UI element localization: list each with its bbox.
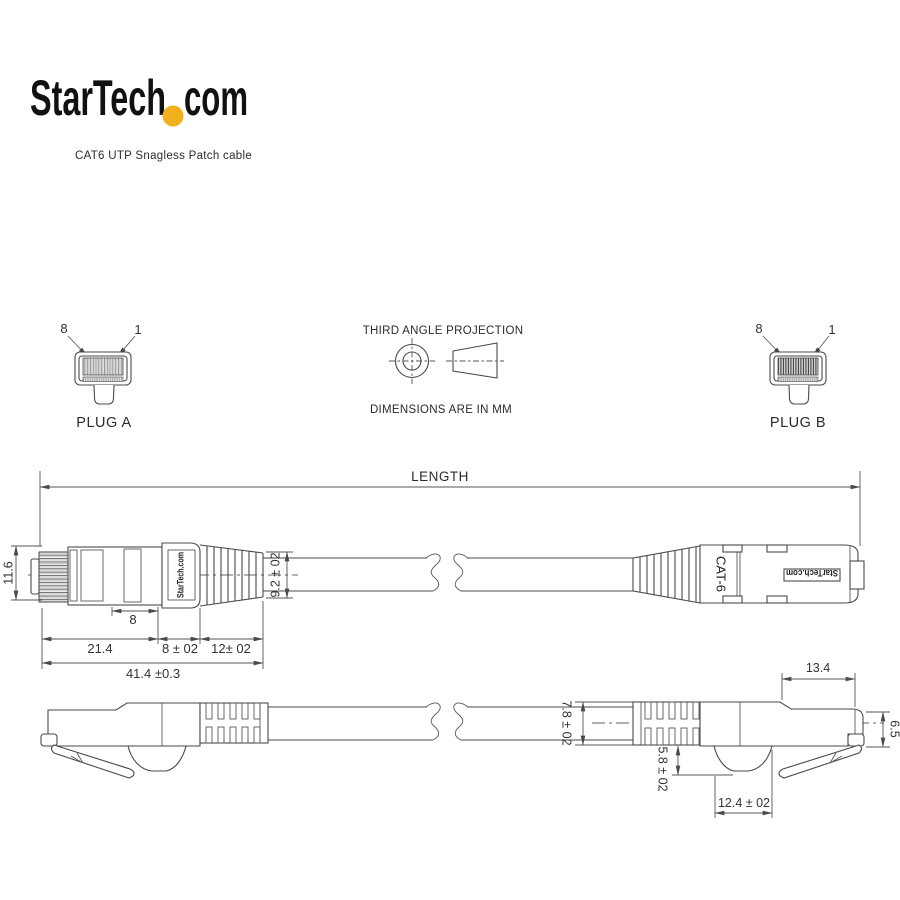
bottom-left-strain-relief [200, 703, 268, 743]
plug-b-strain-tab [789, 385, 809, 404]
latch-shield-notch-2 [767, 545, 787, 552]
latch-dim-text: 8 [129, 612, 136, 627]
plug-a-caption: PLUG A [76, 415, 131, 431]
plug-a-pin8-label: 8 [60, 321, 67, 336]
latch-shield-notch-3 [723, 596, 742, 603]
side-view-left-connector: StarTech.com [28, 543, 440, 608]
latch-foot-right [848, 734, 864, 746]
boot-brand-text: StarTech.com [176, 552, 187, 598]
latch-shield-notch-4 [767, 596, 787, 603]
contact-area-hatched [39, 552, 68, 602]
height-dim-text: 11.6 [1, 561, 15, 584]
strain-relief-right [633, 546, 700, 603]
projection-symbol: THIRD ANGLE PROJECTION DIMENSIONS ARE IN… [363, 325, 524, 416]
plug-b-pin1-label: 1 [828, 322, 835, 337]
projection-title: THIRD ANGLE PROJECTION [363, 325, 524, 337]
drawing-page: StarTech com CAT6 UTP Snagless Patch cab… [0, 0, 900, 900]
bottom-left-body [48, 703, 200, 746]
boot-dia-dim-text: 9.2 ± 02 [268, 552, 282, 597]
bottom-cable-break-right [454, 703, 468, 740]
strain-relief-left [200, 545, 263, 606]
latch-foot-left [41, 734, 57, 746]
relief-dim-text: 12± 02 [211, 641, 251, 656]
bottom-right-strain-relief [633, 702, 700, 745]
latch-arm-right [779, 745, 862, 778]
tip-len-dim-text: 13.4 [806, 661, 830, 675]
latch-shield-notch-1 [723, 545, 742, 552]
brand-logo-text-right: com [184, 70, 248, 126]
connector-body [68, 547, 162, 605]
plug-b-caption: PLUG B [770, 415, 826, 431]
brand-dot-icon [163, 106, 184, 127]
length-dimension: LENGTH [40, 469, 860, 546]
plug-b-cable-band [778, 377, 818, 382]
relief-od-dim-text: 7.8 ± 02 [560, 700, 574, 745]
plug-b-pins [778, 358, 818, 375]
units-note: DIMENSIONS ARE IN MM [370, 404, 512, 416]
plug-b-front-view: 8 1 PLUG B [755, 321, 835, 431]
plug-a-cable-band [83, 377, 123, 382]
guard-len-dim-text: 12.4 ± 02 [718, 796, 770, 810]
plug-a-front-view: 8 1 PLUG A [60, 321, 141, 431]
plug-a-pin1-label: 1 [134, 322, 141, 337]
plug-a-strain-tab [94, 385, 114, 404]
product-subtitle: CAT6 UTP Snagless Patch cable [75, 150, 252, 162]
cable-break-right-segment [454, 554, 468, 591]
plug-a-pins [83, 358, 123, 375]
total-dim-text: 41.4 ±0.3 [126, 666, 180, 681]
bottom-cable-break-left [426, 703, 440, 740]
brand-logo: StarTech com CAT6 UTP Snagless Patch cab… [30, 70, 252, 162]
technical-drawing: StarTech com CAT6 UTP Snagless Patch cab… [0, 0, 900, 900]
latch-arm-left [52, 745, 135, 778]
tip-height-dim-text: 6.5 [888, 720, 900, 737]
brand-logo-text-left: StarTech [30, 70, 166, 126]
body-brand-text: StarTech.com [786, 568, 838, 578]
plug-tip-side [31, 559, 39, 594]
plug-b-pin8-label: 8 [755, 321, 762, 336]
latch-depth-dim-text: 5.8 ± 02 [656, 746, 670, 791]
latch-guard-hump-right [714, 746, 772, 771]
length-label: LENGTH [411, 469, 469, 484]
plug-b-tip-side [850, 561, 864, 589]
bottom-view-left-connector [41, 703, 440, 778]
side-view-right-connector: CAT-6 StarTech.com [454, 545, 864, 603]
latch-guard-hump-left [128, 746, 186, 771]
bottom-right-body [700, 702, 863, 746]
cable-break-left-segment [426, 554, 440, 591]
projection-cone [453, 343, 497, 378]
cable-marking-text: CAT-6 [714, 556, 729, 592]
boot-dim-text: 8 ± 02 [162, 641, 198, 656]
body-dim-text: 21.4 [87, 641, 112, 656]
